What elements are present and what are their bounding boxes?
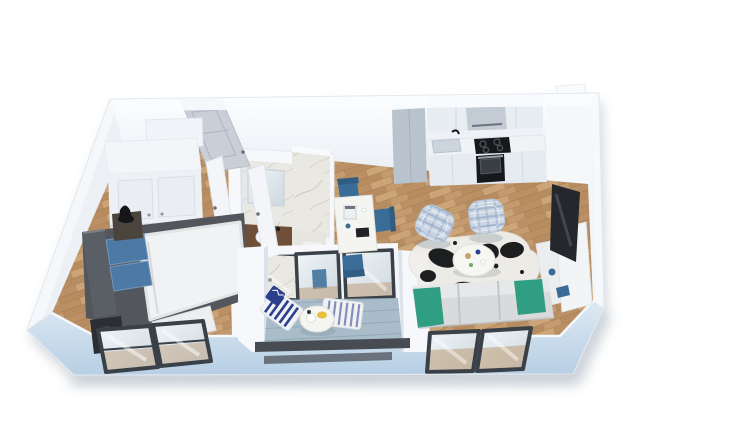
table-item-tan [465, 253, 471, 259]
oven-window [480, 158, 501, 174]
wardrobe-door-right [158, 176, 195, 217]
chaise-deco [549, 269, 556, 276]
living-windows [427, 328, 531, 372]
bedroom-door-handle [213, 206, 217, 210]
balcony-pier-left [238, 246, 268, 352]
black-tablet [356, 228, 370, 238]
desk-table [334, 195, 377, 253]
sofa-teal-cushion-right [514, 279, 546, 315]
table-item [307, 310, 311, 314]
pillow-blue-2 [110, 261, 152, 291]
apartment-svg [0, 0, 747, 444]
vanity-faucet [276, 227, 280, 231]
plate [307, 314, 316, 323]
cooktop [474, 137, 511, 155]
bedroom-windows [98, 321, 211, 372]
shower-drain [268, 278, 272, 282]
balcony [238, 243, 430, 364]
armchair-shadow [469, 233, 503, 243]
entry-door-handle [241, 150, 245, 154]
table-item-candle [481, 260, 485, 264]
shower-marble-panel [292, 146, 330, 238]
desk-chair-right [374, 208, 392, 232]
plaid-armchair-right [467, 198, 506, 235]
round-coffee-table [453, 244, 495, 276]
armchair-body [467, 198, 506, 235]
wardrobe-handle [161, 213, 164, 216]
bathroom-door-handle [256, 212, 260, 216]
range-hood [466, 106, 507, 133]
floor-plan-render [0, 0, 747, 444]
blue-cup [346, 224, 351, 229]
balcony-round-table [300, 306, 334, 332]
table-item-navy [476, 250, 481, 255]
wardrobe-handle [148, 214, 151, 217]
small-item [362, 208, 366, 212]
table-item-green [469, 263, 473, 267]
coffee-machine-top [345, 206, 355, 209]
lemons [317, 312, 327, 319]
kitchen-sink [432, 139, 461, 153]
wardrobe-top [104, 138, 201, 174]
sofa-teal-cushion-left [413, 287, 444, 328]
chair-through-glass [312, 269, 327, 289]
